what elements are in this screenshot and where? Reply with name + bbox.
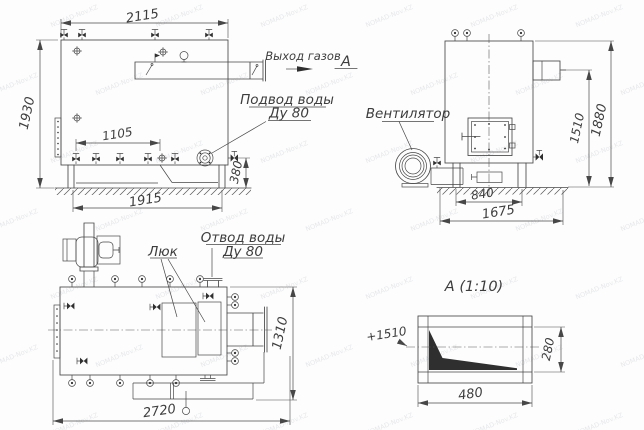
valve-icon [150, 304, 160, 311]
svg-text:NOMAD-Nov.KZ: NOMAD-Nov.KZ [259, 275, 309, 301]
valve-icon [116, 154, 124, 165]
svg-text:NOMAD-Nov.KZ: NOMAD-Nov.KZ [199, 343, 249, 369]
svg-text:NOMAD-Nov.KZ: NOMAD-Nov.KZ [514, 71, 564, 97]
valve-icon [64, 303, 74, 310]
view-arrow-label: А [340, 54, 351, 70]
ground-hatch [437, 188, 568, 195]
valve-icon [87, 375, 94, 386]
valve-icon [92, 154, 100, 165]
svg-text:NOMAD-Nov.KZ: NOMAD-Nov.KZ [574, 275, 624, 301]
svg-text:NOMAD-Nov.KZ: NOMAD-Nov.KZ [409, 207, 459, 233]
label-gas-outlet: Выход газов [265, 49, 341, 63]
dim-drain-span: 1105 [101, 125, 133, 144]
water-inlet-flange [197, 150, 213, 166]
dim-outlet-height: 380 [227, 159, 246, 185]
valve-icon [533, 150, 543, 160]
svg-text:NOMAD-Nov.KZ: NOMAD-Nov.KZ [364, 275, 414, 301]
detail-view-a: А (1:10) +1510 480 280 [365, 279, 565, 407]
svg-text:NOMAD-Nov.KZ: NOMAD-Nov.KZ [619, 343, 644, 369]
dim-total-depth: 1675 [481, 203, 516, 223]
boiler-technical-drawing: NOMAD-Nov.KZNOMAD-Nov.KZNOMAD-Nov.KZNOMA… [0, 0, 644, 430]
detail-title: А (1:10) [444, 279, 503, 295]
valve-icon [167, 276, 174, 287]
svg-text:NOMAD-Nov.KZ: NOMAD-Nov.KZ [469, 411, 519, 430]
watermark-layer: NOMAD-Nov.KZNOMAD-Nov.KZNOMAD-Nov.KZNOMA… [0, 3, 644, 430]
svg-text:NOMAD-Nov.KZ: NOMAD-Nov.KZ [154, 3, 204, 29]
svg-text:NOMAD-Nov.KZ: NOMAD-Nov.KZ [94, 207, 144, 233]
svg-text:NOMAD-Nov.KZ: NOMAD-Nov.KZ [469, 3, 519, 29]
svg-text:NOMAD-Nov.KZ: NOMAD-Nov.KZ [259, 139, 309, 165]
valve-icon [203, 293, 213, 300]
svg-text:NOMAD-Nov.KZ: NOMAD-Nov.KZ [94, 71, 144, 97]
valve-icon [151, 30, 159, 41]
svg-text:NOMAD-Nov.KZ: NOMAD-Nov.KZ [409, 71, 459, 97]
svg-text:NOMAD-Nov.KZ: NOMAD-Nov.KZ [0, 207, 40, 233]
svg-text:NOMAD-Nov.KZ: NOMAD-Nov.KZ [574, 411, 624, 430]
svg-text:NOMAD-Nov.KZ: NOMAD-Nov.KZ [0, 343, 40, 369]
valve-icon [518, 30, 525, 41]
dim-base-span: 840 [470, 185, 495, 202]
valve-icon [227, 294, 238, 301]
valve-icon [147, 375, 154, 386]
valve-icon [112, 276, 119, 287]
dim-total-height: 1880 [589, 103, 611, 138]
valve-icon [60, 30, 68, 41]
svg-text:NOMAD-Nov.KZ: NOMAD-Nov.KZ [49, 411, 99, 430]
door-handle [462, 133, 480, 140]
label-water-outlet-2: Ду 80 [222, 244, 263, 260]
svg-text:NOMAD-Nov.KZ: NOMAD-Nov.KZ [619, 207, 644, 233]
svg-text:NOMAD-Nov.KZ: NOMAD-Nov.KZ [364, 139, 414, 165]
svg-text:NOMAD-Nov.KZ: NOMAD-Nov.KZ [304, 207, 354, 233]
svg-text:NOMAD-Nov.KZ: NOMAD-Nov.KZ [574, 139, 624, 165]
svg-text:NOMAD-Nov.KZ: NOMAD-Nov.KZ [574, 3, 624, 29]
svg-text:NOMAD-Nov.KZ: NOMAD-Nov.KZ [259, 411, 309, 430]
svg-text:NOMAD-Nov.KZ: NOMAD-Nov.KZ [94, 343, 144, 369]
svg-text:NOMAD-Nov.KZ: NOMAD-Nov.KZ [364, 411, 414, 430]
svg-text:NOMAD-Nov.KZ: NOMAD-Nov.KZ [0, 71, 40, 97]
svg-text:NOMAD-Nov.KZ: NOMAD-Nov.KZ [49, 3, 99, 29]
flange-bolts [56, 308, 58, 352]
valve-icon [78, 30, 86, 41]
svg-text:NOMAD-Nov.KZ: NOMAD-Nov.KZ [514, 207, 564, 233]
dim-outlet-elev: 1510 [567, 111, 587, 144]
label-water-inlet-2: Ду 80 [268, 106, 309, 122]
valve-icon [433, 158, 441, 169]
front-view: 1510 1880 840 1675 Вентилятор [366, 30, 614, 225]
flange-bolts [57, 121, 59, 156]
label-fan: Вентилятор [366, 106, 450, 122]
dim-detail-width: 480 [457, 385, 484, 403]
dim-width: 1310 [270, 316, 292, 351]
dim-elevation: +1510 [365, 324, 408, 344]
hatch-opening [198, 302, 221, 355]
svg-text:NOMAD-Nov.KZ: NOMAD-Nov.KZ [364, 3, 414, 29]
valve-icon [117, 375, 124, 386]
valve-icon [144, 154, 152, 165]
valve-icon [227, 302, 238, 309]
valve-icon [464, 30, 471, 41]
valve-icon [77, 358, 87, 365]
water-outlet-flange [204, 279, 222, 288]
dim-height: 1930 [17, 96, 39, 131]
valve-icon [139, 276, 146, 287]
label-hatch: Люк [147, 244, 179, 260]
svg-text:NOMAD-Nov.KZ: NOMAD-Nov.KZ [304, 343, 354, 369]
gas-flow-arrow-icon [297, 66, 313, 72]
svg-text:NOMAD-Nov.KZ: NOMAD-Nov.KZ [619, 71, 644, 97]
valve-icon [452, 30, 459, 41]
valve-icon [69, 375, 76, 386]
dim-detail-height: 280 [539, 336, 558, 362]
detail-view-geometry [398, 316, 541, 383]
plan-view: 2720 1310 Люк Отвод воды Ду 80 [48, 223, 297, 425]
valve-icon [205, 30, 213, 41]
dim-length: 2720 [142, 402, 177, 421]
side-view: 2115 1930 1105 1915 380 Выход газов А По… [17, 7, 357, 212]
svg-text:NOMAD-Nov.KZ: NOMAD-Nov.KZ [259, 3, 309, 29]
drawing-canvas: NOMAD-Nov.KZNOMAD-Nov.KZNOMAD-Nov.KZNOMA… [0, 0, 644, 430]
svg-text:NOMAD-Nov.KZ: NOMAD-Nov.KZ [49, 275, 99, 301]
